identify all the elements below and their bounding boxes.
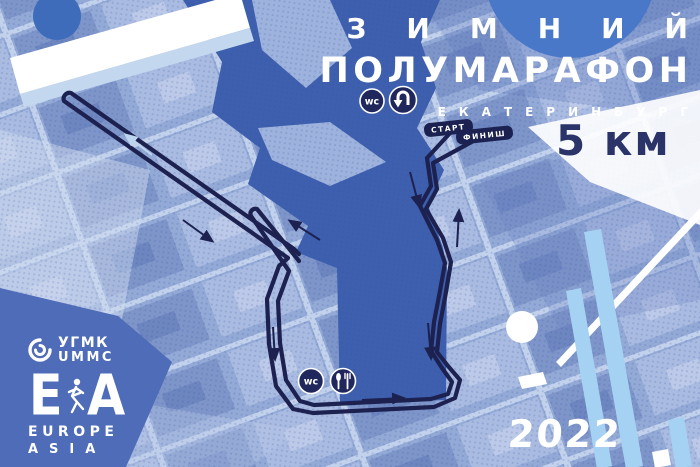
europe-asia-mark: E A xyxy=(28,368,148,424)
ummc-ru-label: УГМК xyxy=(58,336,114,351)
title-line-1: ЗИМНИЙ xyxy=(319,15,700,43)
runner-icon xyxy=(64,376,86,416)
food-icon xyxy=(331,369,356,394)
ea-letter-a: A xyxy=(87,368,125,424)
distance-label: 5 км xyxy=(556,116,671,165)
asia-label: ASIA xyxy=(28,442,148,458)
ummc-logo: УГМК UMMC xyxy=(28,336,148,364)
svg-text:wc: wc xyxy=(304,377,318,388)
white-dash-bottom-right xyxy=(652,449,671,467)
ummc-text: УГМК UMMC xyxy=(58,336,114,364)
title-line-2: ПОЛУМАРАФОН xyxy=(319,54,692,89)
white-dot xyxy=(506,311,538,343)
wc-icon: wc xyxy=(299,369,324,394)
ummc-en-label: UMMC xyxy=(58,351,114,365)
ea-letter-e: E xyxy=(29,368,63,424)
sponsor-logos: УГМК UMMC E A EUROPE ASIA xyxy=(28,336,148,458)
poster-title: ЗИМНИЙ ПОЛУМАРАФОН ЕКАТЕРИНБУРГ xyxy=(319,15,688,118)
race-poster: wc wc ЗИМНИЙ ПОЛУМАРАФОН Е xyxy=(0,0,700,467)
year-label: 2022 xyxy=(506,412,623,456)
ummc-swirl-icon xyxy=(28,338,52,362)
